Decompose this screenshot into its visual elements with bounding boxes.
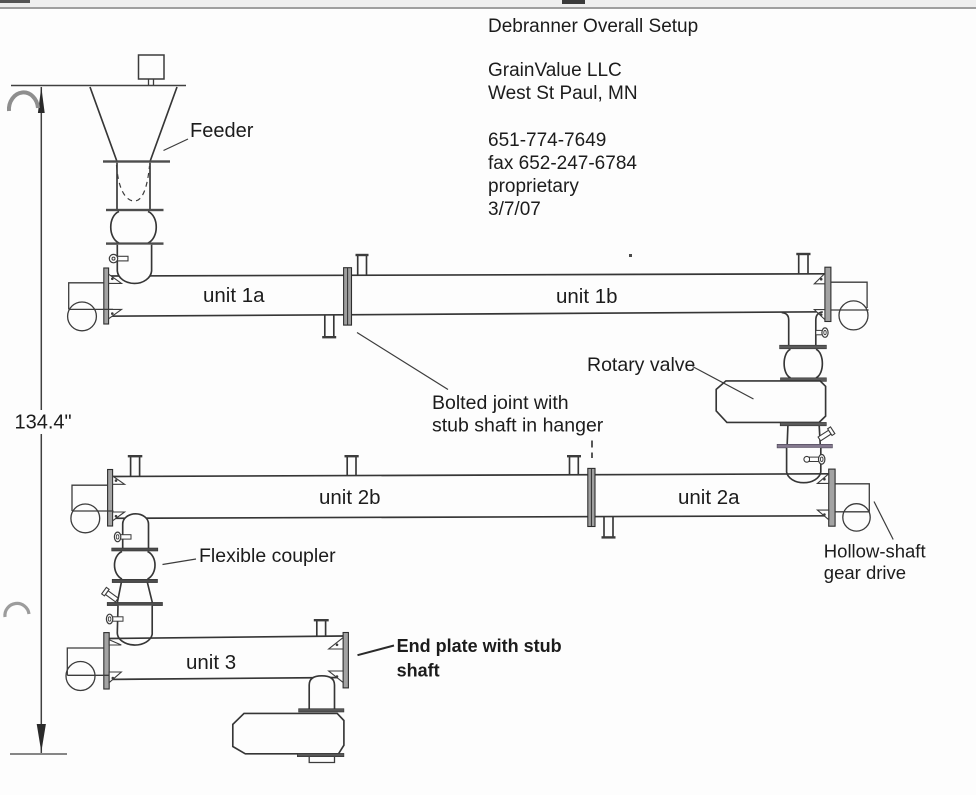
- svg-text:unit 3: unit 3: [186, 651, 236, 674]
- svg-text:West St Paul, MN: West St Paul, MN: [488, 83, 638, 104]
- svg-text:GrainValue LLC: GrainValue LLC: [488, 60, 622, 81]
- svg-text:Flexible coupler: Flexible coupler: [199, 545, 336, 567]
- svg-text:Hollow-shaft: Hollow-shaft: [824, 541, 926, 562]
- svg-text:proprietary: proprietary: [488, 176, 579, 197]
- svg-text:134.4": 134.4": [15, 412, 72, 434]
- svg-text:Feeder: Feeder: [190, 120, 254, 142]
- svg-text:fax 652-247-6784: fax 652-247-6784: [488, 153, 637, 174]
- svg-text:unit 1a: unit 1a: [203, 284, 265, 307]
- svg-text:651-774-7649: 651-774-7649: [488, 130, 606, 151]
- svg-text:gear drive: gear drive: [824, 562, 906, 583]
- svg-text:shaft: shaft: [397, 661, 440, 681]
- svg-text:stub shaft in hanger: stub shaft in hanger: [432, 415, 604, 437]
- svg-text:Bolted joint with: Bolted joint with: [432, 392, 569, 414]
- svg-text:Rotary valve: Rotary valve: [587, 354, 695, 376]
- svg-text:unit 1b: unit 1b: [556, 285, 618, 308]
- svg-text:unit 2b: unit 2b: [319, 486, 381, 509]
- svg-text:unit 2a: unit 2a: [678, 486, 740, 509]
- svg-text:End plate with stub: End plate with stub: [397, 636, 562, 656]
- svg-text:3/7/07: 3/7/07: [488, 199, 541, 220]
- svg-text:Debranner Overall Setup: Debranner Overall Setup: [488, 16, 698, 37]
